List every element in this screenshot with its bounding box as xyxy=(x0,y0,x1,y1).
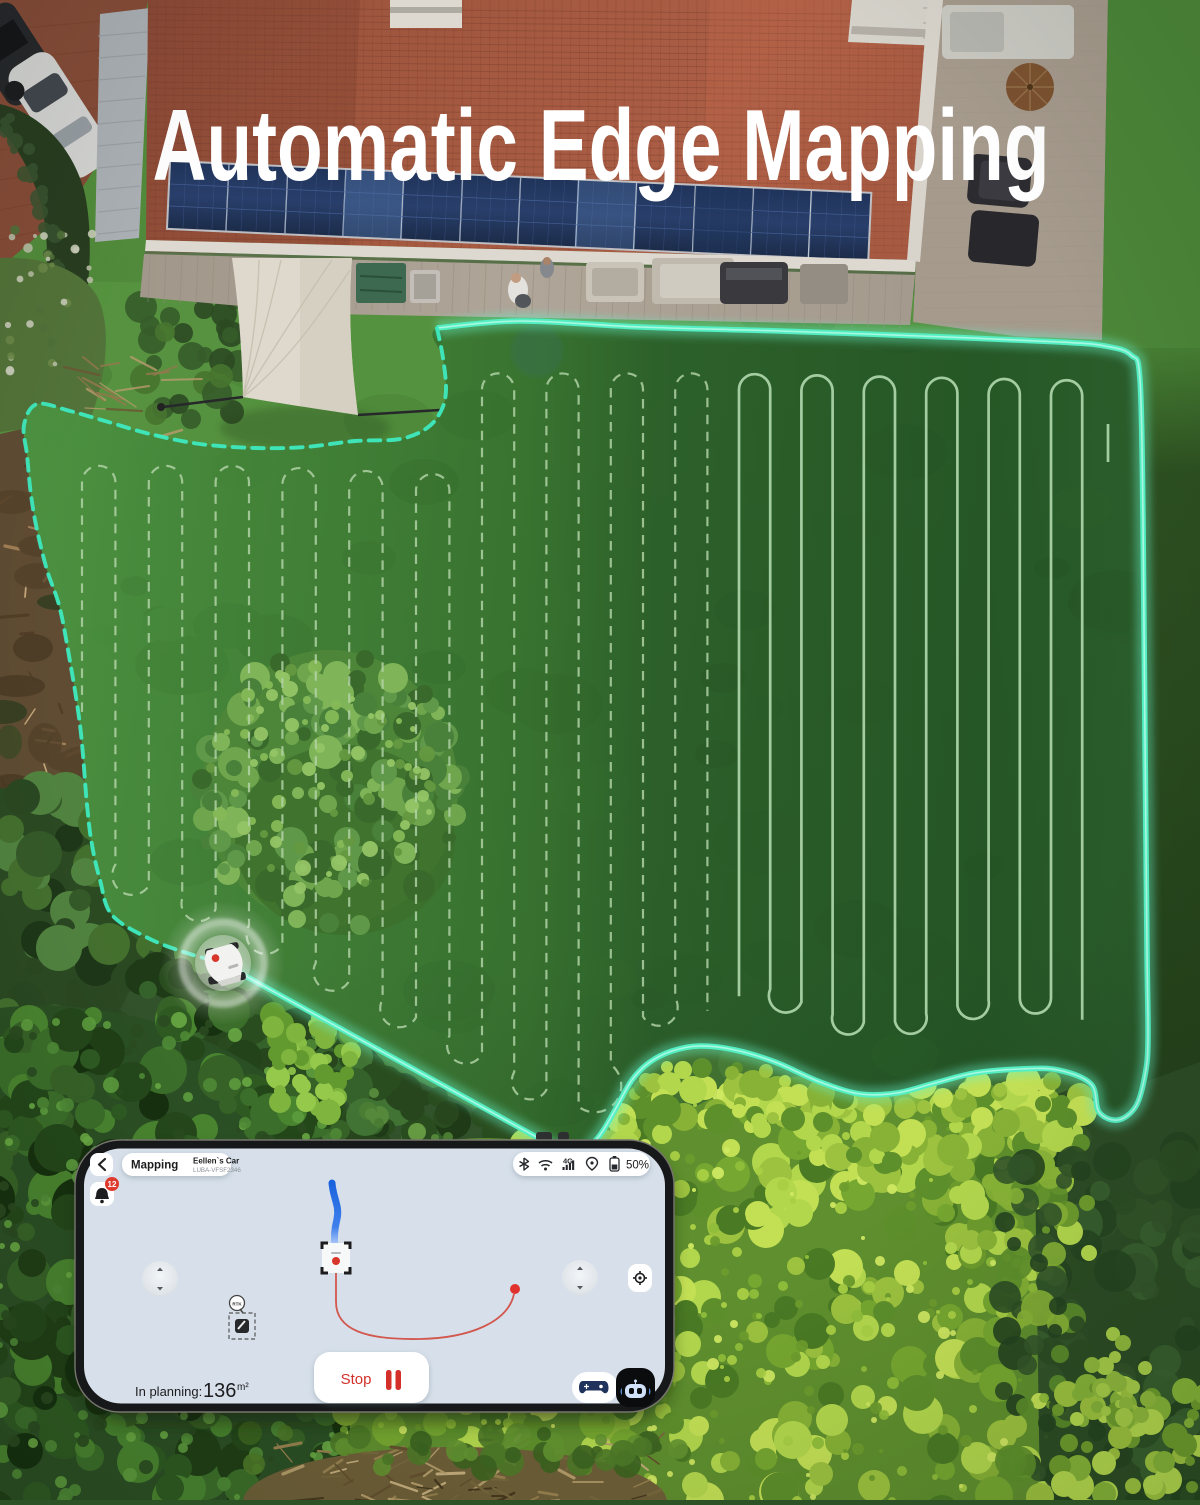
svg-text:In planning:: In planning: xyxy=(135,1384,202,1399)
svg-text:136: 136 xyxy=(203,1380,236,1402)
svg-text:RTK: RTK xyxy=(232,1302,242,1307)
svg-text:12: 12 xyxy=(108,1180,117,1189)
svg-text:Eellen`s Car: Eellen`s Car xyxy=(193,1157,239,1166)
svg-text:4G: 4G xyxy=(563,1157,573,1166)
svg-text:Mapping: Mapping xyxy=(131,1160,178,1172)
svg-text:LUBA-VFSF2346: LUBA-VFSF2346 xyxy=(193,1167,241,1174)
svg-text:m²: m² xyxy=(237,1382,249,1393)
svg-text:Stop: Stop xyxy=(341,1371,372,1388)
svg-text:50%: 50% xyxy=(626,1160,649,1172)
